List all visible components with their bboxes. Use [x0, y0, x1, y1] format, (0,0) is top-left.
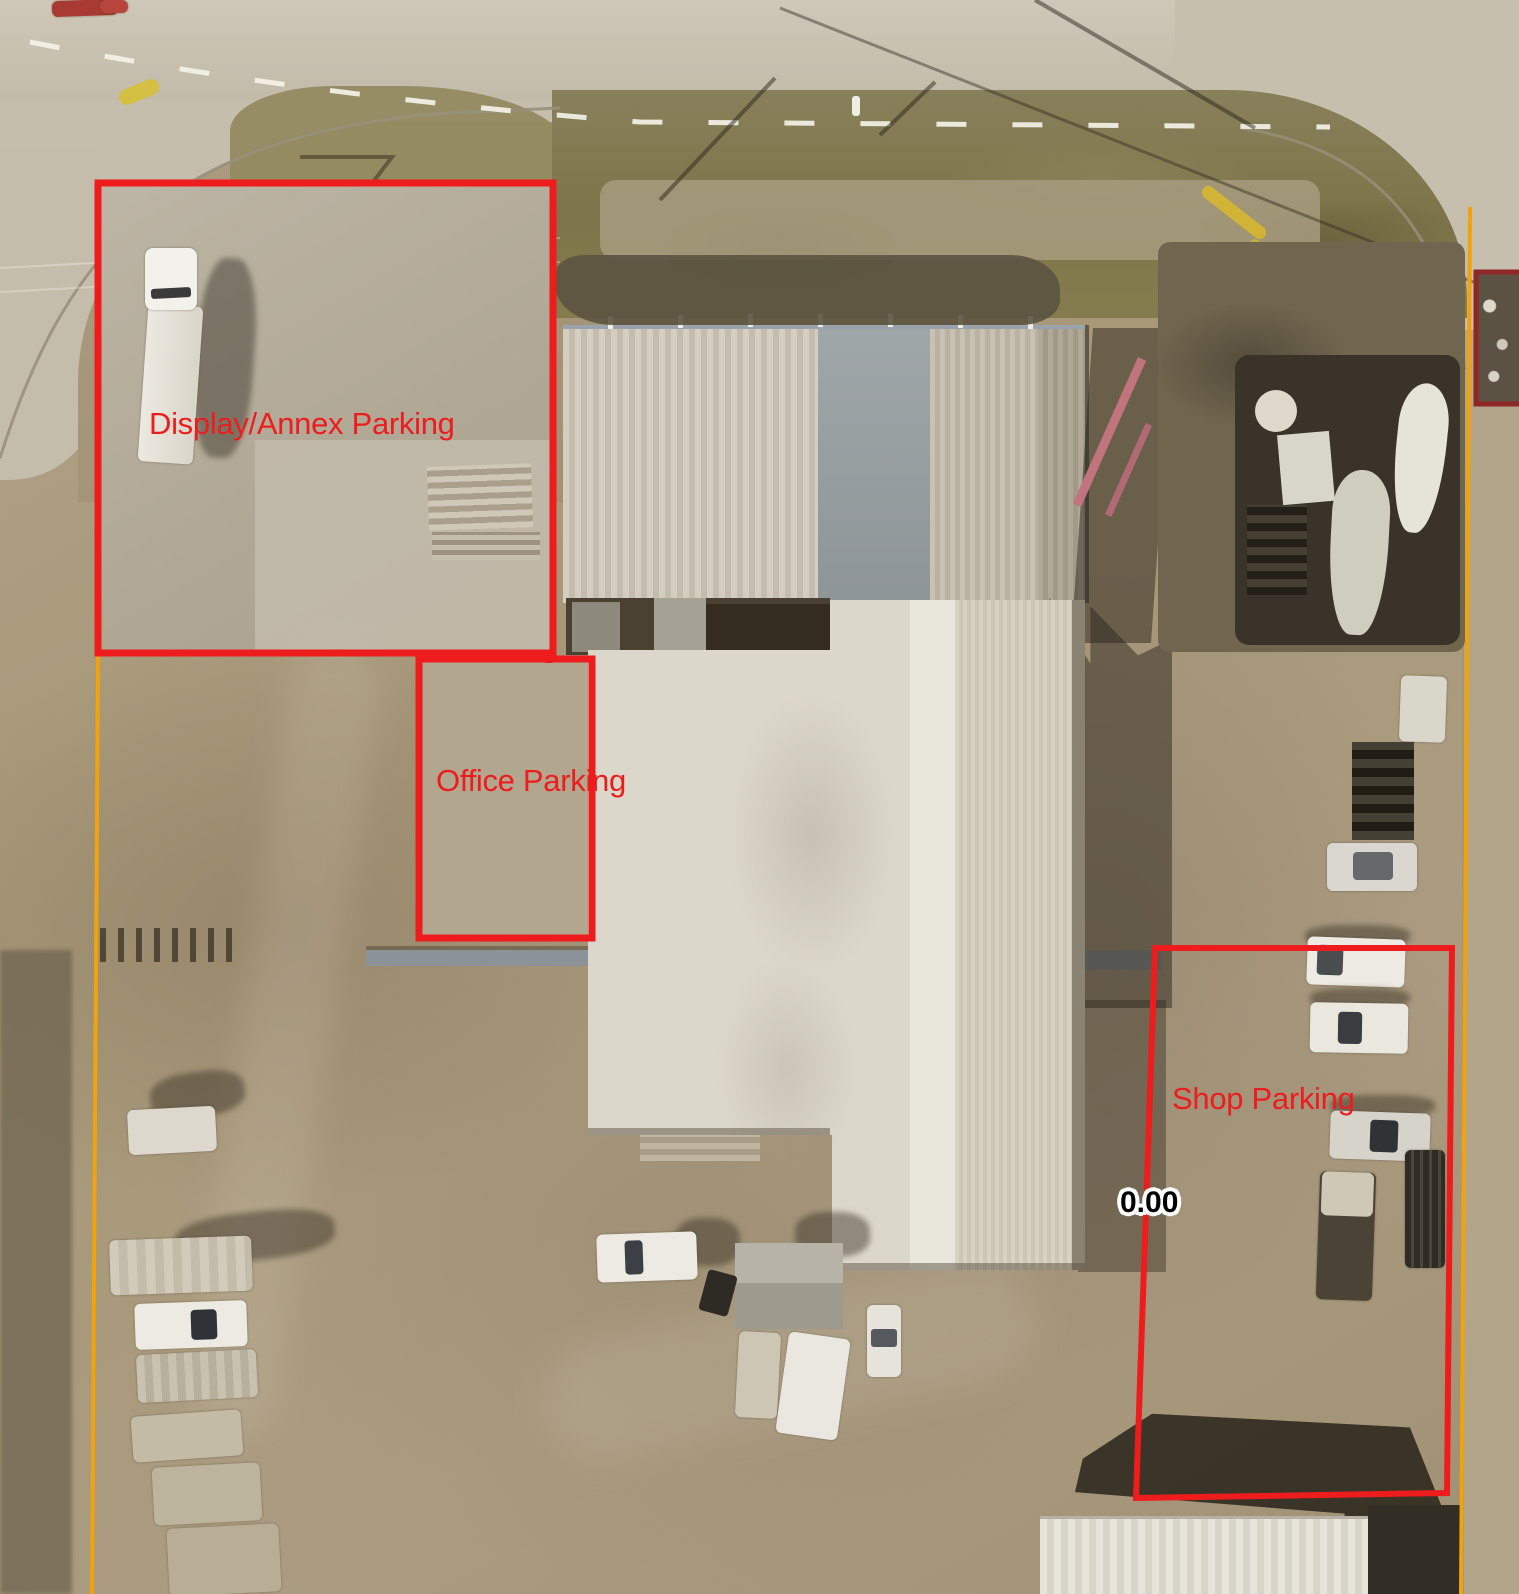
- main-roof-eave-left: [588, 1128, 830, 1135]
- fence-row-left: [100, 928, 232, 962]
- shed-roof-north: [735, 1243, 843, 1283]
- vehicle-pickup-white: [134, 1300, 248, 1350]
- hvac-unit-1: [572, 602, 620, 652]
- lumber-stack-1: [427, 463, 533, 531]
- vehicle-flatbed: [136, 1349, 258, 1403]
- junk-drum: [1255, 390, 1297, 432]
- vehicle-white-truck-center: [867, 1305, 901, 1377]
- junk-cluster: [1235, 355, 1460, 645]
- scrub-left-edge: [0, 950, 72, 1594]
- vehicle-white-car-1: [1306, 936, 1406, 987]
- east-wall-shadow-strip: [1078, 1000, 1166, 1272]
- zone-label-shop: Shop Parking: [1172, 1081, 1355, 1117]
- metal-roof-panel-mid: [818, 325, 930, 603]
- dark-trailer-right: [1405, 1150, 1445, 1268]
- main-roof-eave-right: [832, 1263, 1085, 1270]
- vehicle-semi-cab: [145, 248, 197, 310]
- car-glass: [624, 1240, 643, 1275]
- car-glass: [1338, 1012, 1363, 1044]
- metal-roof-ribbed-right: [930, 325, 1038, 603]
- white-box-trailer: [1399, 675, 1447, 743]
- scrap-pile-right: [1477, 274, 1519, 402]
- car-glass: [1353, 852, 1393, 880]
- shed-roof-south: [735, 1283, 843, 1329]
- hvac-unit-2: [654, 598, 706, 654]
- office-concrete-pad: [419, 659, 592, 939]
- junk-bits-1: [1247, 505, 1307, 595]
- truck-glass: [871, 1329, 897, 1347]
- car-glass: [1317, 945, 1344, 976]
- semi-windshield: [151, 287, 191, 299]
- boat-hull-1: [1387, 381, 1452, 535]
- vehicle-trailer-5: [166, 1523, 281, 1594]
- loading-dock: [640, 1135, 760, 1161]
- metal-roof-ridge-line: [563, 325, 1085, 329]
- vehicle-trailer-4: [152, 1462, 263, 1526]
- vehicle-silver-car-1: [1327, 843, 1417, 891]
- vehicle-trailer-3: [131, 1409, 244, 1463]
- main-roof-ribbed-band: [955, 598, 1072, 1272]
- junk-crate: [1277, 431, 1335, 505]
- pickup-glass: [190, 1309, 217, 1340]
- measurement-label: 0.00: [1120, 1186, 1178, 1220]
- vehicle-pickup-brown: [1316, 1171, 1376, 1301]
- main-roof-east-edge: [1072, 598, 1085, 1272]
- white-post-grass: [852, 96, 860, 116]
- boat-hull-2: [1326, 469, 1393, 637]
- aerial-site-map: Display/Annex Parking Office Parking Sho…: [0, 0, 1519, 1594]
- zone-label-office: Office Parking: [436, 763, 626, 799]
- car-glass: [1369, 1120, 1398, 1153]
- alley-dark-pit: [706, 604, 830, 654]
- pickup-cab: [1321, 1171, 1375, 1217]
- retaining-wall-office: [366, 950, 598, 966]
- metal-roof-ribbed-left: [563, 325, 818, 603]
- pallet-stack: [1352, 742, 1414, 840]
- vehicle-white-car-center: [596, 1231, 698, 1282]
- shop-building-roof: [1040, 1516, 1370, 1594]
- main-roof-bright-band: [910, 598, 955, 1272]
- shop-shadow-strip: [1368, 1505, 1460, 1594]
- vehicle-white-car-2: [1310, 1002, 1409, 1054]
- metal-building: [563, 325, 1085, 603]
- zone-label-display-annex: Display/Annex Parking: [149, 406, 455, 442]
- vehicle-red-trailer-road: [100, 0, 128, 13]
- vehicle-trailer-flat-center: [735, 1331, 781, 1419]
- vehicle-trailer-long: [109, 1236, 253, 1296]
- gravel-berm-shadow: [555, 255, 1060, 325]
- alley-dark-strip: [566, 598, 830, 655]
- lumber-stack-2: [432, 532, 540, 560]
- vehicle-camper: [127, 1106, 217, 1156]
- shed: [735, 1243, 843, 1329]
